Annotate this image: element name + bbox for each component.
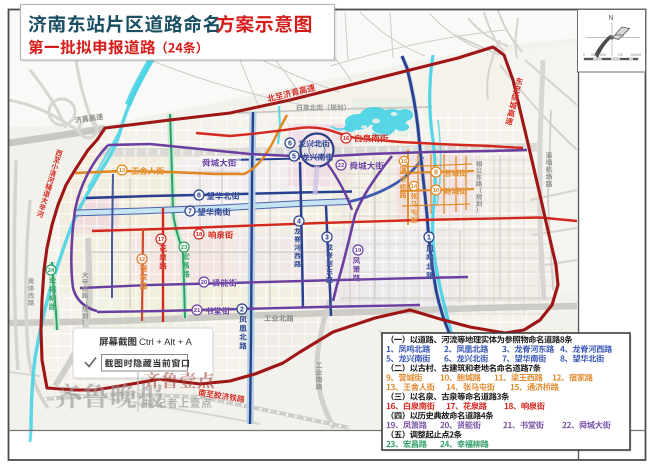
svg-text:8: 8 — [197, 193, 201, 200]
svg-text:20: 20 — [201, 280, 208, 286]
svg-text:Ctrl + Alt + A: Ctrl + Alt + A — [139, 337, 192, 348]
svg-text:500: 500 — [600, 53, 606, 57]
svg-text:6: 6 — [288, 141, 292, 148]
svg-text:0: 0 — [583, 53, 585, 57]
svg-text:22: 22 — [338, 163, 345, 169]
svg-text:N: N — [608, 15, 613, 22]
svg-text:14: 14 — [411, 184, 418, 190]
svg-text:5: 5 — [292, 154, 296, 161]
svg-text:18: 18 — [196, 232, 203, 238]
svg-text:16: 16 — [343, 136, 350, 142]
svg-text:7: 7 — [188, 209, 192, 216]
svg-text:15: 15 — [401, 159, 408, 165]
svg-text:1000M: 1000M — [630, 53, 641, 57]
svg-text:21: 21 — [194, 308, 201, 314]
svg-text:250: 250 — [591, 53, 597, 57]
svg-text:10: 10 — [433, 188, 440, 194]
svg-text:19: 19 — [355, 248, 362, 254]
svg-text:2: 2 — [240, 307, 244, 314]
svg-text:1: 1 — [427, 235, 431, 242]
svg-text:12: 12 — [139, 257, 146, 263]
svg-text:24: 24 — [48, 268, 55, 274]
svg-text:4: 4 — [297, 219, 301, 226]
svg-text:3: 3 — [325, 235, 329, 242]
svg-text:23: 23 — [181, 245, 188, 251]
svg-text:9: 9 — [434, 170, 438, 177]
svg-text:13: 13 — [119, 168, 126, 174]
svg-text:750: 750 — [617, 53, 623, 57]
svg-text:17: 17 — [158, 237, 165, 243]
